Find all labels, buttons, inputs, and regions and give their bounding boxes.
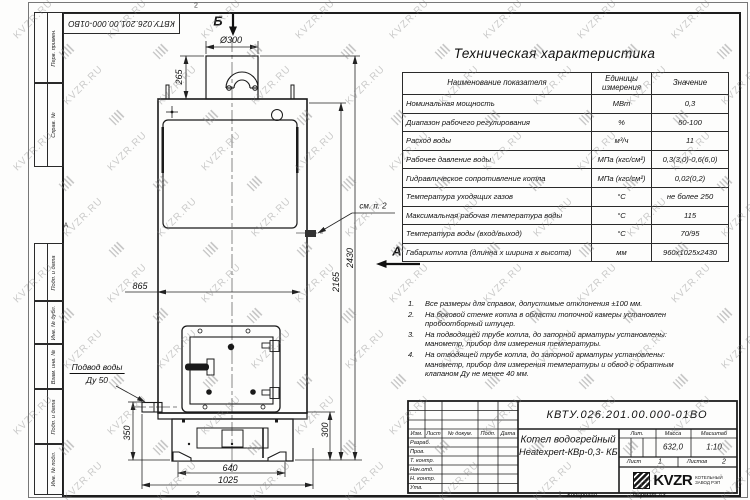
product-name-line2: Heatexpert-КВр-0,3- КБ(К	[519, 447, 618, 457]
note-text: Все размеры для справок, допустимые откл…	[425, 299, 700, 309]
note-item: 1.Все размеры для справок, допустимые от…	[408, 299, 700, 309]
note-number: 2.	[408, 310, 425, 329]
tech-table-cell: 115	[652, 206, 729, 225]
titleblock-col-header: Подп.	[481, 431, 496, 437]
tech-table-cell: 70/95	[652, 225, 729, 244]
frame-strip-box: Подп. и дата	[34, 388, 64, 445]
mass-label: Масса	[665, 431, 682, 437]
tech-table-row: Габариты котла (длинна х ширина х высота…	[403, 243, 729, 262]
tech-table-row: Диапазон рабочего регулирования%50-100	[403, 113, 729, 132]
tech-table-cell: мм	[592, 243, 652, 262]
tech-table-cell: 11	[652, 132, 729, 151]
titleblock-sign-row: Н. контр.	[410, 476, 435, 482]
tech-table-row: Максимальная рабочая температура воды°С1…	[403, 206, 729, 225]
sheets-label: Листов	[687, 459, 707, 465]
tech-table-cell: 50-100	[652, 113, 729, 132]
product-name-line1: Котел водогрейный	[520, 435, 615, 446]
lit-label: Лит.	[630, 431, 643, 437]
tech-table-cell: Температура воды (вход/выход)	[403, 225, 592, 244]
tech-table-cell: °С	[592, 206, 652, 225]
tech-table-header-row: Наименование показателяЕдиницы измерения…	[403, 73, 729, 95]
tech-table-cell: Номинальная мощность	[403, 95, 592, 114]
copied-label: Копировал	[567, 493, 597, 499]
tech-table-cell: Максимальная рабочая температура воды	[403, 206, 592, 225]
rotated-docnumber: КВТУ.026.201.00.000-01ВО	[68, 19, 175, 28]
tech-table-cell: %	[592, 113, 652, 132]
scale-value: 1:10	[706, 443, 722, 452]
frame-strip-box: Перв. примен.	[34, 12, 64, 84]
tech-table-cell: МВт	[592, 95, 652, 114]
drawing-sheet: КВТУ.026.201.00.000-01ВО Перв. примен.Сп…	[0, 0, 750, 500]
titleblock-col-header: Лист	[426, 431, 440, 437]
tech-table-row: Гидравлическое сопротивление котлаМПа (к…	[403, 169, 729, 188]
rotated-docnumber-box: КВТУ.026.201.00.000-01ВО	[63, 13, 180, 34]
note-text: На подводящей трубе котла, до запорной а…	[425, 330, 700, 349]
frame-strip-box: Справ. №	[34, 82, 64, 167]
tech-table-cell: 0,3(3,0)-0,6(6,0)	[652, 150, 729, 169]
kvzr-logo-sub2: ЗАВОД РЭП	[695, 480, 723, 486]
kvzr-logo: KVZR КОТЕЛЬНЫЙ ЗАВОД РЭП	[620, 468, 736, 492]
frame-strip-label: Подп. и дата	[51, 399, 57, 434]
tech-table: Наименование показателяЕдиницы измерения…	[402, 72, 729, 262]
tech-table-cell: Диапазон рабочего регулирования	[403, 113, 592, 132]
titleblock-col-header: Дата	[501, 431, 516, 437]
format-label: Формат А3	[633, 493, 666, 499]
note-item: 4.На отводящей трубе котла, до запорной …	[408, 350, 700, 379]
frame-strip-label: Инв. № дубл.	[51, 305, 57, 339]
titleblock-col-header: Изм.	[411, 431, 423, 437]
note-text: На отводящей трубе котла, до запорной ар…	[425, 350, 700, 379]
note-text: На боковой стенке котла в области топочн…	[425, 310, 700, 329]
tech-table-cell: МПа (кгс/см²)	[592, 169, 652, 188]
frame-strip-box: Инв. № подл.	[34, 443, 64, 495]
tech-table-col-header: Единицы измерения	[592, 73, 652, 95]
tech-table-row: Температура воды (вход/выход)°С70/95	[403, 225, 729, 244]
tech-table-row: Расход водым³/ч11	[403, 132, 729, 151]
titleblock-docnumber: КВТУ.026.201.00.000-01ВО	[546, 409, 707, 421]
mass-value: 632,0	[663, 443, 683, 452]
tech-table-cell: не более 250	[652, 187, 729, 206]
tech-table-cell: м³/ч	[592, 132, 652, 151]
tech-table-cell: °С	[592, 187, 652, 206]
notes-list: 1.Все размеры для справок, допустимые от…	[408, 299, 700, 380]
tech-table-cell: Габариты котла (длинна х ширина х высота…	[403, 243, 592, 262]
tech-table-cell: 0,3	[652, 95, 729, 114]
tech-table-cell: Температура уходящих газов	[403, 187, 592, 206]
tech-table-cell: Гидравлическое сопротивление котла	[403, 169, 592, 188]
titleblock-sign-row: Т. контр.	[410, 458, 434, 464]
note-item: 2.На боковой стенке котла в области топо…	[408, 310, 700, 329]
frame-strip-label: Перв. примен.	[51, 29, 57, 66]
tech-table-body: Номинальная мощностьМВт0,3Диапазон рабоч…	[403, 95, 729, 262]
kvzr-logo-mark-icon	[633, 472, 650, 489]
note-number: 4.	[408, 350, 425, 379]
note-number: 1.	[408, 299, 425, 309]
note-number: 3.	[408, 330, 425, 349]
tech-table-row: Температура уходящих газов°Сне более 250	[403, 187, 729, 206]
frame-strip-box: Инв. № дубл.	[34, 300, 64, 345]
frame-strip-label: Подп. и дата	[51, 255, 57, 290]
tech-table-cell: МПа (кгс/см²)	[592, 150, 652, 169]
titleblock-sign-row: Пров.	[410, 449, 425, 455]
tech-table-title: Техническая характеристика	[402, 46, 707, 61]
tech-table-row: Номинальная мощностьМВт0,3	[403, 95, 729, 114]
titleblock-sign-row: Нач.отд.	[410, 467, 434, 473]
tech-table-cell: Расход воды	[403, 132, 592, 151]
frame-strip-box: Взам. инв. №	[34, 343, 64, 390]
titleblock-sign-row: Утв.	[410, 485, 423, 491]
tech-table-cell: °С	[592, 225, 652, 244]
note-item: 3.На подводящей трубе котла, до запорной…	[408, 330, 700, 349]
titleblock-sign-row: Разраб.	[410, 440, 430, 446]
scale-label: Масштаб	[701, 431, 727, 437]
sheet-label: Лист	[627, 459, 641, 465]
frame-strip-box: Подп. и дата	[34, 243, 64, 302]
tech-table-cell: 960х1025х2430	[652, 243, 729, 262]
tech-table-cell: 0,02(0,2)	[652, 169, 729, 188]
tech-table-col-header: Значение	[652, 73, 729, 95]
tech-table-col-header: Наименование показателя	[403, 73, 592, 95]
titleblock-col-header: № докум.	[448, 431, 473, 437]
frame-strip-label: Взам. инв. №	[51, 349, 57, 384]
kvzr-logo-text: KVZR	[653, 472, 692, 489]
tech-table-cell: Рабочее давление воды	[403, 150, 592, 169]
frame-strip-label: Справ. №	[51, 112, 57, 137]
tech-table-row: Рабочее давление водыМПа (кгс/см²)0,3(3,…	[403, 150, 729, 169]
sheets-value: 2	[722, 459, 726, 466]
sheet-value: 1	[658, 459, 662, 466]
frame-strip-label: Инв. № подл.	[51, 452, 57, 487]
